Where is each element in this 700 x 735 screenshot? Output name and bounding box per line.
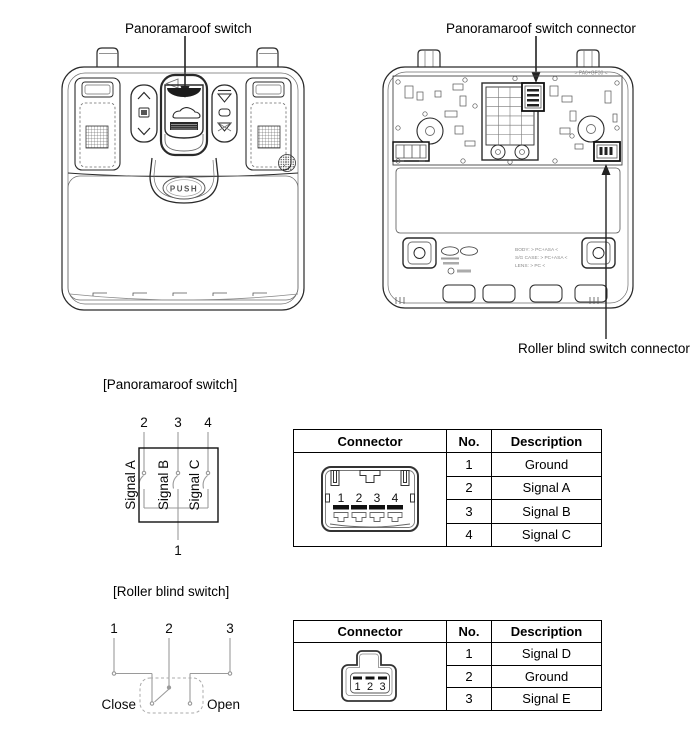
pin-number: 2 <box>165 621 173 636</box>
material-markings: BODY: > PC+ASA < S/G CASE: > PC+ASA < LE… <box>515 247 568 269</box>
open-position-label: Open <box>207 697 240 712</box>
console-back-lower: BODY: > PC+ASA < S/G CASE: > PC+ASA < LE… <box>396 168 620 304</box>
pin-no-cell: 3 <box>447 688 492 711</box>
panoramaroof-switch-connector-label: Panoramaroof switch connector <box>446 21 636 36</box>
signal-c-label: Signal C <box>187 459 202 510</box>
connector-pin-label: 3 <box>379 681 385 693</box>
map-lamp-left <box>75 78 120 170</box>
roller-blind-connector-pin-diagram: 1 2 3 <box>337 645 403 707</box>
column-header-connector: Connector <box>294 621 447 643</box>
sunglass-holder: PUSH <box>68 158 298 300</box>
switch-lever-icon <box>155 689 170 702</box>
panoramaroof-connector-table: Connector No. Description 1 2 <box>293 429 602 547</box>
switch-body-dashed-outline <box>140 678 203 713</box>
pin-no-cell: 1 <box>447 643 492 666</box>
overhead-console-front-drawing: PUSH <box>40 36 320 340</box>
pin-description-cell: Signal E <box>492 688 602 711</box>
pin-no-cell: 2 <box>447 476 492 500</box>
panoramaroof-switch-schematic: 2 3 4 1 Signal A Signal B Signal C <box>95 405 255 570</box>
pin-description-cell: Signal A <box>492 476 602 500</box>
map-lamp-lens-grid-icon <box>86 126 108 148</box>
sunroof-slide-icon <box>219 109 230 116</box>
connector-pin-label: 1 <box>354 681 360 693</box>
connector-drawing-cell: 1 2 3 4 <box>294 453 447 547</box>
push-label: PUSH <box>170 185 198 194</box>
pin-description-cell: Ground <box>492 665 602 688</box>
overhead-console-back-drawing: > PA6+GF30 < BODY: > PC+ASA < S <box>365 36 665 366</box>
roller-blind-connector-arrow <box>602 164 611 339</box>
connector-pin-label: 4 <box>392 491 399 505</box>
connector-terminals <box>330 512 410 527</box>
switch-contact-icon <box>203 476 207 489</box>
pin-number: 4 <box>204 415 212 430</box>
column-header-connector: Connector <box>294 430 447 453</box>
column-header-no: No. <box>447 430 492 453</box>
signal-b-label: Signal B <box>156 460 171 510</box>
column-header-description: Description <box>492 430 602 453</box>
pcb-area: > PA6+GF30 < <box>393 71 622 166</box>
connector-pin-marks <box>333 505 403 510</box>
chevron-up-icon <box>138 93 150 100</box>
switch-groove <box>167 88 201 97</box>
aux-connector-left <box>393 142 429 161</box>
lamp-button-icon-fill <box>141 110 147 115</box>
roller-blind-switch-section-label: [Roller blind switch] <box>113 584 229 599</box>
connector-pin-label: 1 <box>338 491 345 505</box>
panoramaroof-switch-connector <box>522 83 544 111</box>
switch-contact-icon <box>173 476 177 489</box>
roller-blind-switch-connector <box>594 142 620 161</box>
right-button-strip <box>212 85 237 142</box>
pin-description-cell: Signal B <box>492 500 602 524</box>
connector-drawing-cell: 1 2 3 <box>294 643 447 711</box>
pin-no-cell: 2 <box>447 665 492 688</box>
schematic-wires <box>112 638 231 705</box>
connector-pin-label: 3 <box>374 491 381 505</box>
pin-description-cell: Ground <box>492 453 602 477</box>
roller-blind-switch-schematic: 1 2 3 Close Open <box>95 612 255 727</box>
pin-number: 1 <box>110 621 118 636</box>
connector-pin-marks <box>353 677 387 680</box>
panoramaroof-switch-section-label: [Panoramaroof switch] <box>103 377 237 392</box>
triangle-left-icon <box>167 79 179 88</box>
microphone-icon <box>279 155 296 172</box>
panoramaroof-connector-pin-diagram: 1 2 3 4 <box>320 465 420 535</box>
close-position-label: Close <box>101 697 136 712</box>
panoramaroof-switch-label: Panoramaroof switch <box>125 21 252 36</box>
sunroof-tilt-icon <box>218 94 231 102</box>
svg-text:BODY: > PC+ASA <: BODY: > PC+ASA < <box>515 247 558 253</box>
pin-number: 1 <box>174 543 182 558</box>
material-marking-top: > PA6+GF30 < <box>574 71 607 77</box>
left-button-strip <box>131 85 157 142</box>
column-header-no: No. <box>447 621 492 643</box>
brand-logos <box>441 247 478 274</box>
connector-center-tab <box>360 470 380 482</box>
pin-no-cell: 1 <box>447 453 492 477</box>
connector-pin-label: 2 <box>356 491 363 505</box>
bottom-clips <box>443 285 607 302</box>
roller-blind-connector-table: Connector No. Description 1 2 <box>293 620 602 711</box>
signal-a-label: Signal A <box>123 460 138 510</box>
pin-description-cell: Signal D <box>492 643 602 666</box>
map-lamp-lens-grid-icon <box>258 126 280 148</box>
manual-page: Panoramaroof switch Panoramaroof switch … <box>0 0 700 735</box>
switch-contact-icon <box>139 476 143 489</box>
pin-number: 2 <box>140 415 148 430</box>
pin-description-cell: Signal C <box>492 523 602 547</box>
column-header-description: Description <box>492 621 602 643</box>
svg-text:LENS: > PC <: LENS: > PC < <box>515 263 545 269</box>
car-sunroof-icon <box>173 108 200 118</box>
svg-text:S/G CASE: > PC+ASA <: S/G CASE: > PC+ASA < <box>515 255 568 261</box>
pin-no-cell: 3 <box>447 500 492 524</box>
pin-number: 3 <box>174 415 182 430</box>
console-back-housing <box>383 50 633 308</box>
connector-pin-label: 2 <box>367 681 373 693</box>
pin-no-cell: 4 <box>447 523 492 547</box>
pin-number: 3 <box>226 621 234 636</box>
chevron-down-icon <box>138 128 150 135</box>
